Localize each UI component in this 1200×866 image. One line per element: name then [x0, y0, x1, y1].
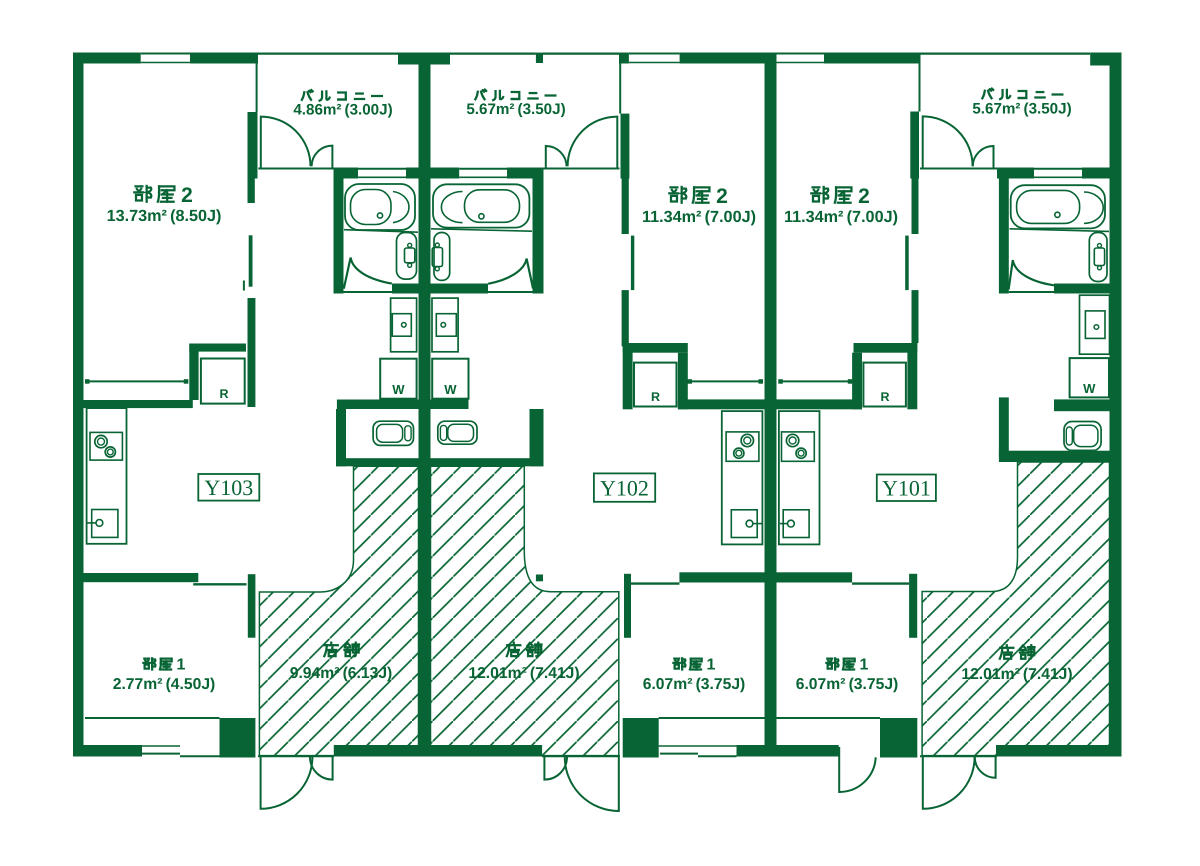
svg-text:Y102: Y102 — [600, 476, 649, 501]
svg-text:2: 2 — [716, 185, 728, 208]
svg-text:9.94m² (6.13J): 9.94m² (6.13J) — [290, 665, 393, 682]
svg-text:1: 1 — [177, 657, 186, 674]
svg-text:6.07m² (3.75J): 6.07m² (3.75J) — [796, 676, 899, 693]
svg-text:W: W — [1083, 381, 1096, 396]
svg-text:11.34m² (7.00J): 11.34m² (7.00J) — [784, 208, 898, 226]
svg-text:R: R — [651, 390, 660, 404]
svg-text:1: 1 — [860, 657, 869, 674]
svg-text:2.77m² (4.50J): 2.77m² (4.50J) — [113, 676, 216, 693]
svg-text:12.01m² (7.41J): 12.01m² (7.41J) — [961, 666, 1072, 683]
svg-text:11.34m² (7.00J): 11.34m² (7.00J) — [642, 208, 756, 226]
svg-text:Y101: Y101 — [882, 476, 931, 501]
svg-text:W: W — [444, 382, 457, 397]
svg-text:12.01m² (7.41J): 12.01m² (7.41J) — [468, 665, 579, 682]
svg-text:2: 2 — [858, 185, 870, 208]
svg-text:1: 1 — [707, 657, 716, 674]
svg-text:4.86m² (3.00J): 4.86m² (3.00J) — [293, 101, 392, 118]
svg-text:W: W — [392, 382, 405, 397]
svg-text:13.73m² (8.50J): 13.73m² (8.50J) — [107, 207, 222, 225]
svg-text:5.67m² (3.50J): 5.67m² (3.50J) — [972, 101, 1071, 118]
svg-text:R: R — [880, 390, 889, 404]
svg-text:2: 2 — [181, 184, 193, 207]
svg-text:6.07m² (3.75J): 6.07m² (3.75J) — [643, 676, 746, 693]
svg-text:5.67m² (3.50J): 5.67m² (3.50J) — [466, 101, 565, 118]
svg-text:R: R — [219, 387, 228, 401]
svg-text:Y103: Y103 — [204, 475, 253, 500]
